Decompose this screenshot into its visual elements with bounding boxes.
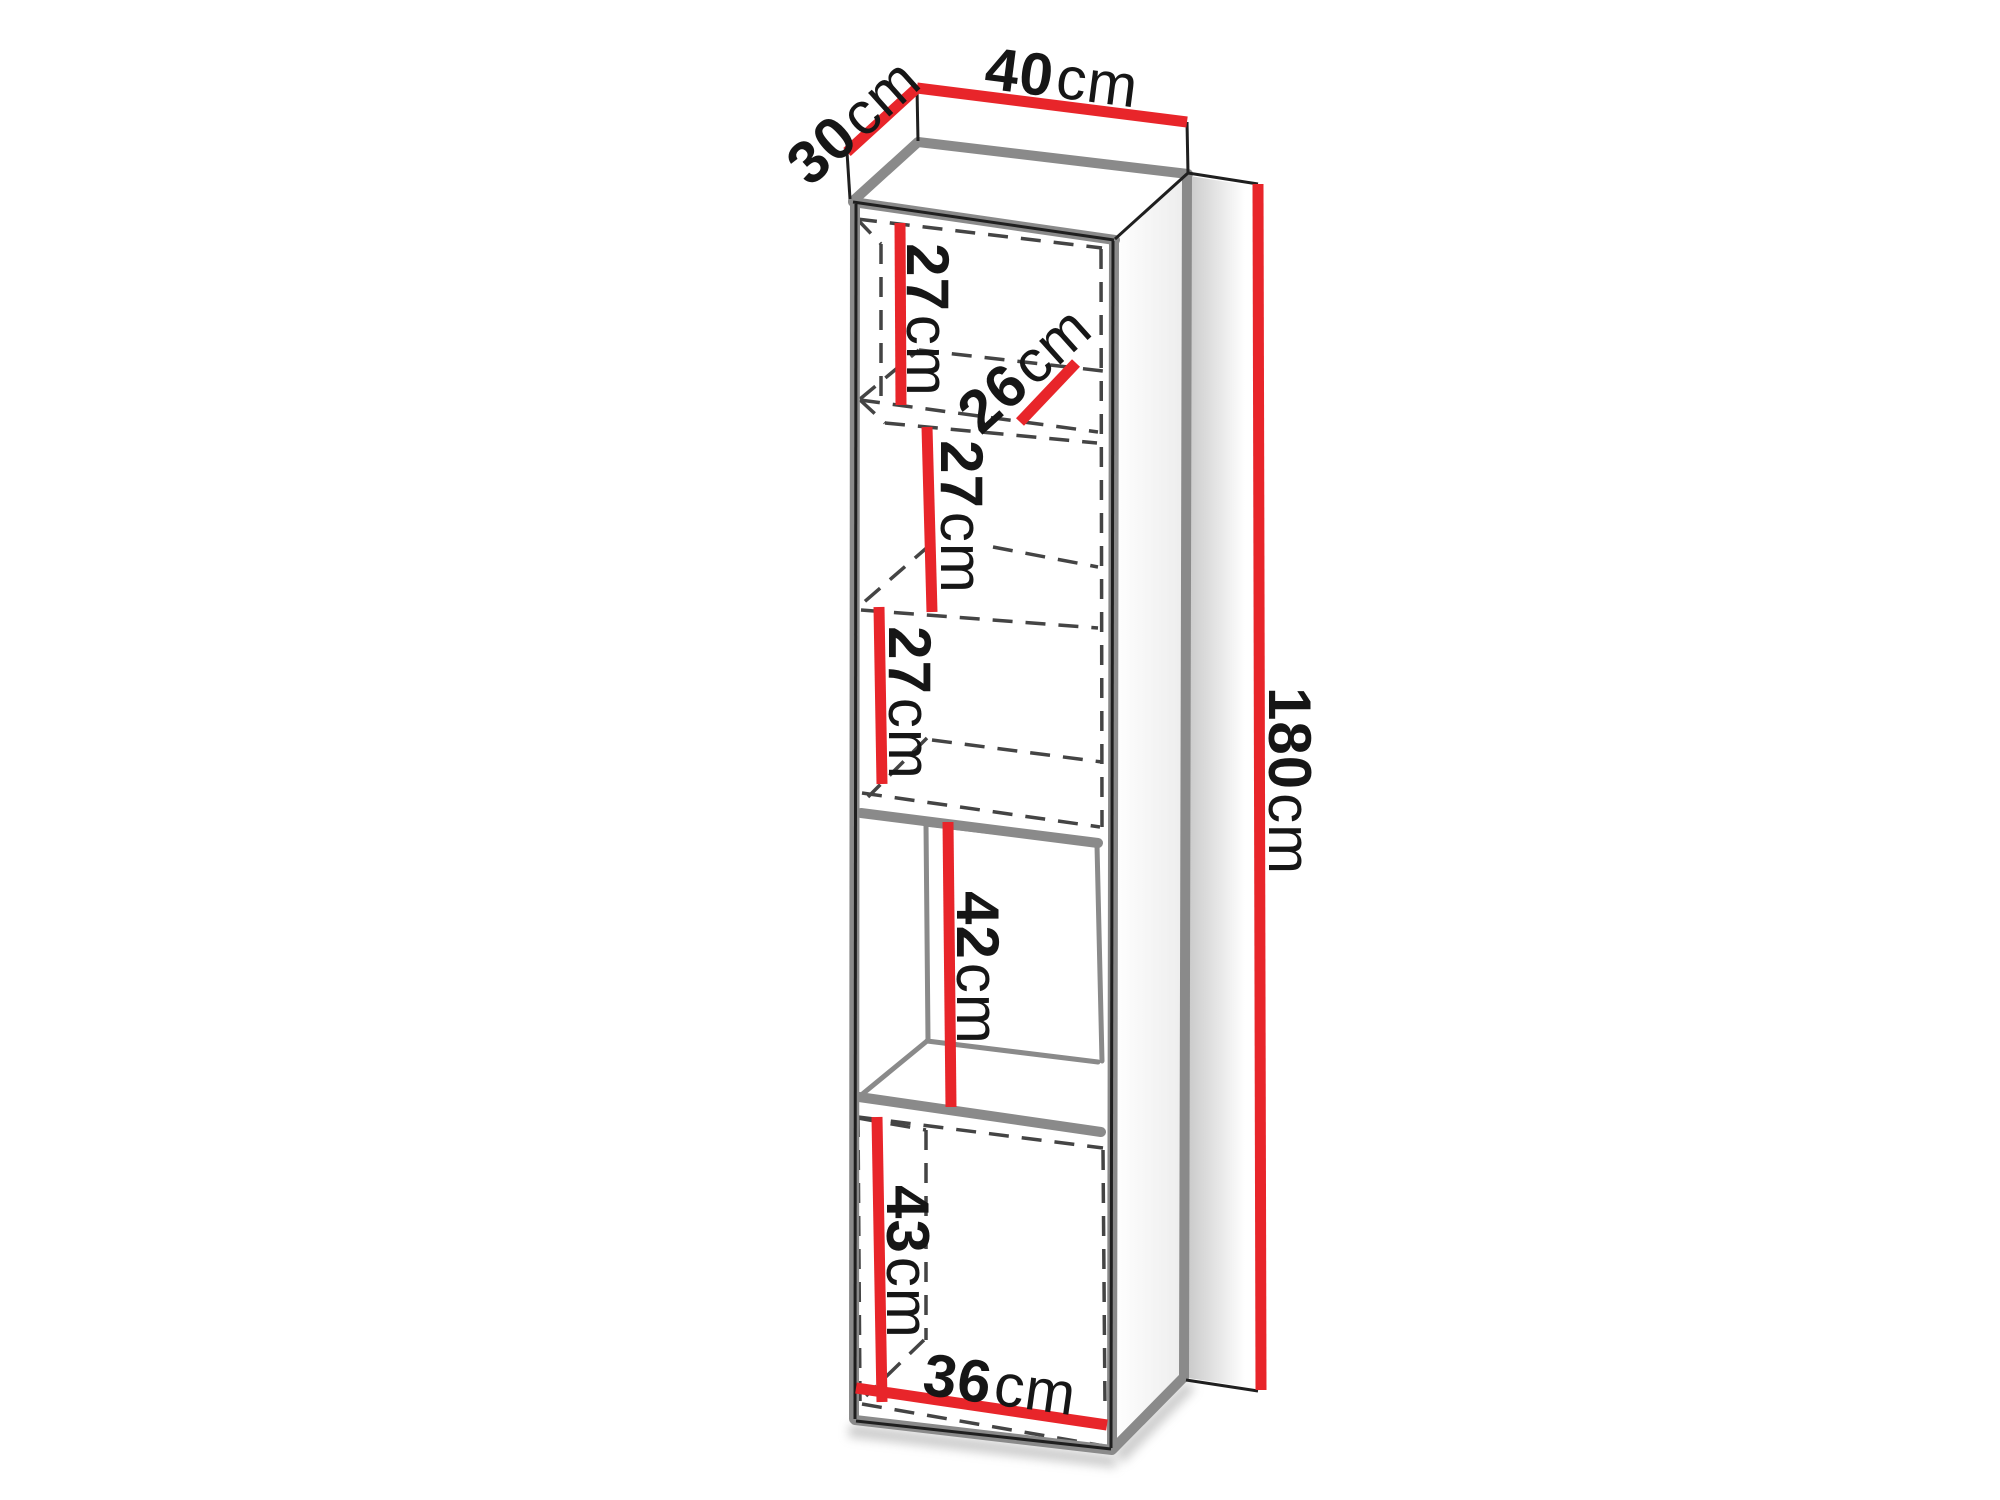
- diagram-svg: 30cm 40cm 27cm 26cm 27cm 27cm 42cm 43cm …: [0, 0, 2000, 1500]
- side-face: [1112, 173, 1188, 1450]
- furniture-dimension-diagram: 30cm 40cm 27cm 26cm 27cm 27cm 42cm 43cm …: [0, 0, 2000, 1500]
- dim-label-bottom-compartment: 43cm: [875, 1185, 942, 1339]
- niche-left-corner: [926, 824, 928, 1040]
- wall-shading-band: [1188, 176, 1255, 1388]
- front-right-core: [1111, 241, 1113, 1448]
- dim-label-open-niche: 42cm: [945, 891, 1012, 1045]
- back-right-edge: [1184, 175, 1187, 1377]
- rim-corner-back-right: [1187, 122, 1188, 173]
- front-left-core: [855, 204, 856, 1419]
- dim-label-compartment1: 27cm: [895, 243, 962, 397]
- dim-label-compartment3: 27cm: [877, 626, 944, 780]
- dim-label-height: 180cm: [1257, 687, 1324, 875]
- dim-label-compartment2: 27cm: [929, 440, 996, 594]
